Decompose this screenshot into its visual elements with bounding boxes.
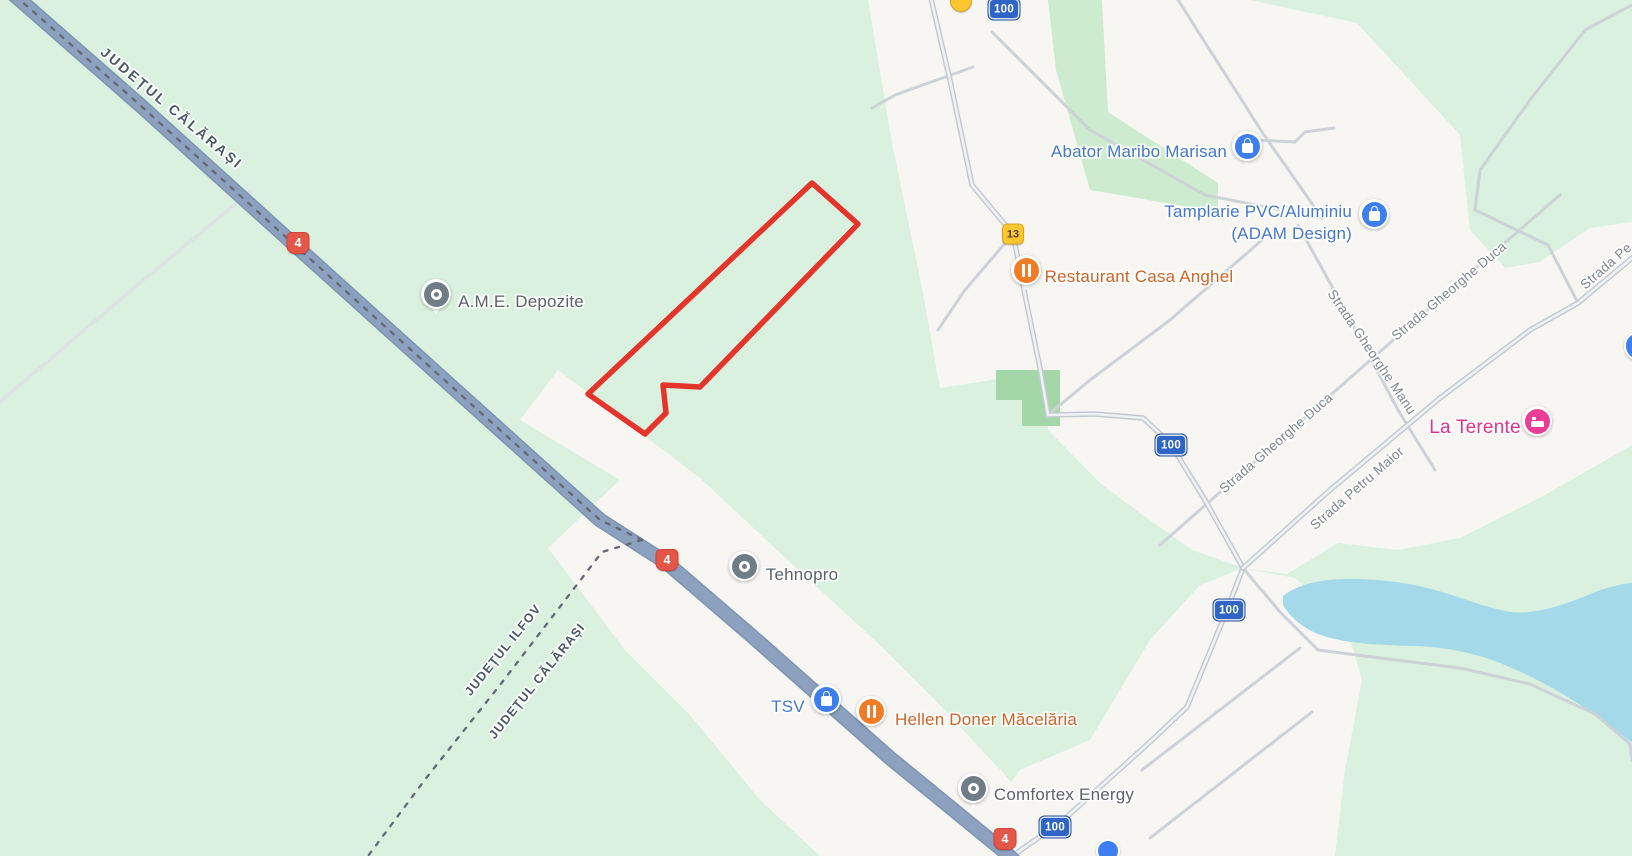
poi-label-tamplarie[interactable]: Tamplarie PVC/Aluminiu (ADAM Design) bbox=[1032, 201, 1352, 244]
shopping-bag-icon bbox=[1362, 202, 1387, 227]
route-shield-100: 100 bbox=[1213, 599, 1246, 622]
pin-bubble bbox=[958, 773, 988, 803]
poi-label-tamplarie-line2: (ADAM Design) bbox=[1032, 223, 1352, 245]
map-canvas[interactable]: JUDEȚUL CĂLĂRAȘI JUDEȚUL ILFOV JUDEȚUL C… bbox=[0, 0, 1632, 856]
poi-marker-tsv[interactable] bbox=[811, 684, 841, 724]
shopping-bag-icon bbox=[1235, 134, 1260, 159]
lodging-bed-icon bbox=[1525, 409, 1550, 434]
route-shield-100: 100 bbox=[1155, 434, 1188, 457]
route-shield-4: 4 bbox=[994, 828, 1017, 850]
poi-label-comfortex[interactable]: Comfortex Energy bbox=[994, 785, 1134, 805]
poi-label-la-terente[interactable]: La Terente bbox=[1429, 417, 1520, 439]
poi-marker-restaurant[interactable] bbox=[1011, 255, 1041, 295]
poi-dot-marker[interactable] bbox=[1096, 839, 1120, 856]
poi-label-tsv[interactable]: TSV bbox=[771, 697, 805, 717]
poi-marker-comfortex[interactable] bbox=[958, 773, 988, 813]
restaurant-icon bbox=[1014, 258, 1039, 283]
pin-bubble bbox=[1359, 199, 1389, 229]
poi-marker-tehnopro[interactable] bbox=[729, 551, 759, 591]
poi-label-abator[interactable]: Abator Maribo Marisan bbox=[1051, 142, 1227, 162]
poi-label-restaurant[interactable]: Restaurant Casa Anghel bbox=[1045, 267, 1234, 287]
poi-label-ame-depozite[interactable]: A.M.E. Depozite bbox=[458, 292, 584, 312]
pin-bubble bbox=[811, 684, 841, 714]
pin-bubble bbox=[729, 551, 759, 581]
poi-marker-la-terente[interactable] bbox=[1522, 406, 1552, 446]
pin-bubble bbox=[856, 696, 886, 726]
poi-marker-abator[interactable] bbox=[1232, 131, 1262, 171]
poi-marker-ame-depozite[interactable] bbox=[421, 279, 451, 319]
generic-place-icon bbox=[732, 554, 757, 579]
shopping-bag-icon bbox=[814, 687, 839, 712]
pin-bubble bbox=[1232, 131, 1262, 161]
restaurant-icon bbox=[859, 699, 884, 724]
poi-label-hellen-doner[interactable]: Hellen Doner Măcelăria bbox=[895, 710, 1077, 730]
poi-label-tamplarie-line1: Tamplarie PVC/Aluminiu bbox=[1032, 201, 1352, 223]
poi-marker-hellen-doner[interactable] bbox=[856, 696, 886, 736]
pin-bubble bbox=[421, 279, 451, 309]
route-shield-100: 100 bbox=[988, 0, 1021, 21]
pin-bubble bbox=[1011, 255, 1041, 285]
pin-bubble bbox=[1522, 406, 1552, 436]
route-shield-100: 100 bbox=[1039, 816, 1072, 839]
poi-label-tehnopro[interactable]: Tehnopro bbox=[766, 565, 839, 585]
poi-marker-tamplarie[interactable] bbox=[1359, 199, 1389, 239]
route-shield-4: 4 bbox=[656, 549, 679, 571]
route-shield-4: 4 bbox=[287, 232, 310, 254]
map-layers bbox=[0, 0, 1632, 856]
generic-place-icon bbox=[424, 282, 449, 307]
route-shield-13: 13 bbox=[1002, 224, 1024, 245]
generic-place-icon bbox=[961, 776, 986, 801]
